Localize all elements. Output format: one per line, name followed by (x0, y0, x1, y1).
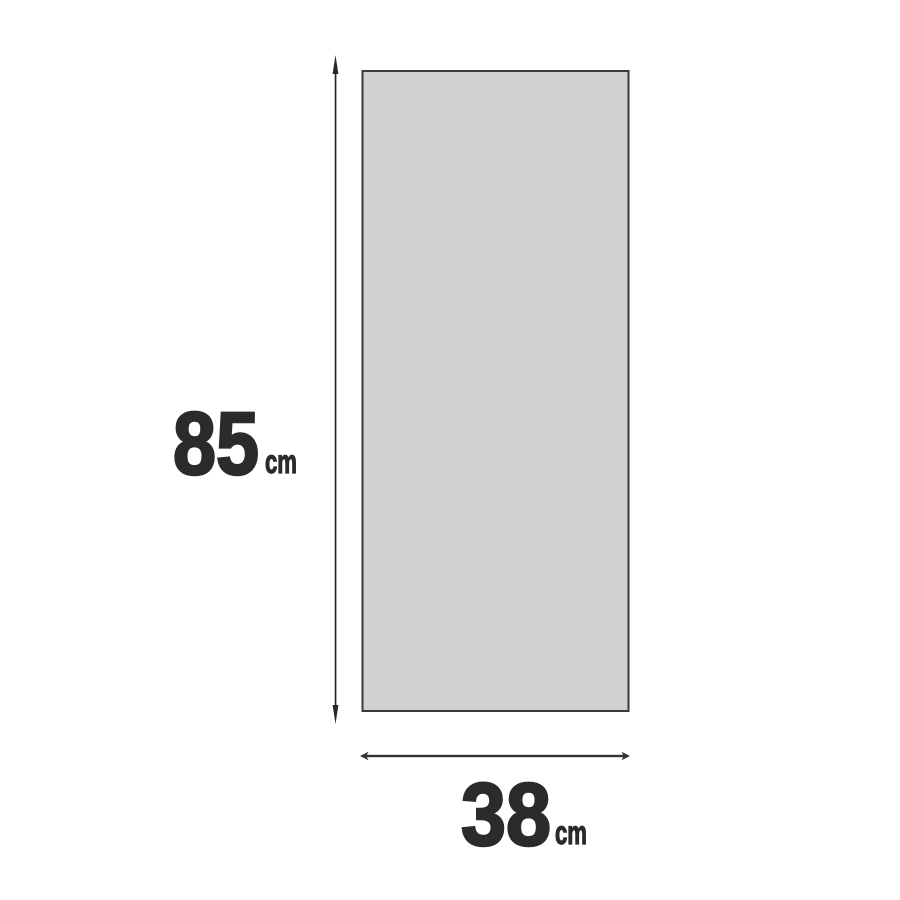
svg-text:cm: cm (555, 814, 587, 851)
svg-text:38: 38 (461, 764, 551, 864)
svg-text:cm: cm (265, 443, 297, 480)
svg-text:85: 85 (173, 393, 259, 493)
